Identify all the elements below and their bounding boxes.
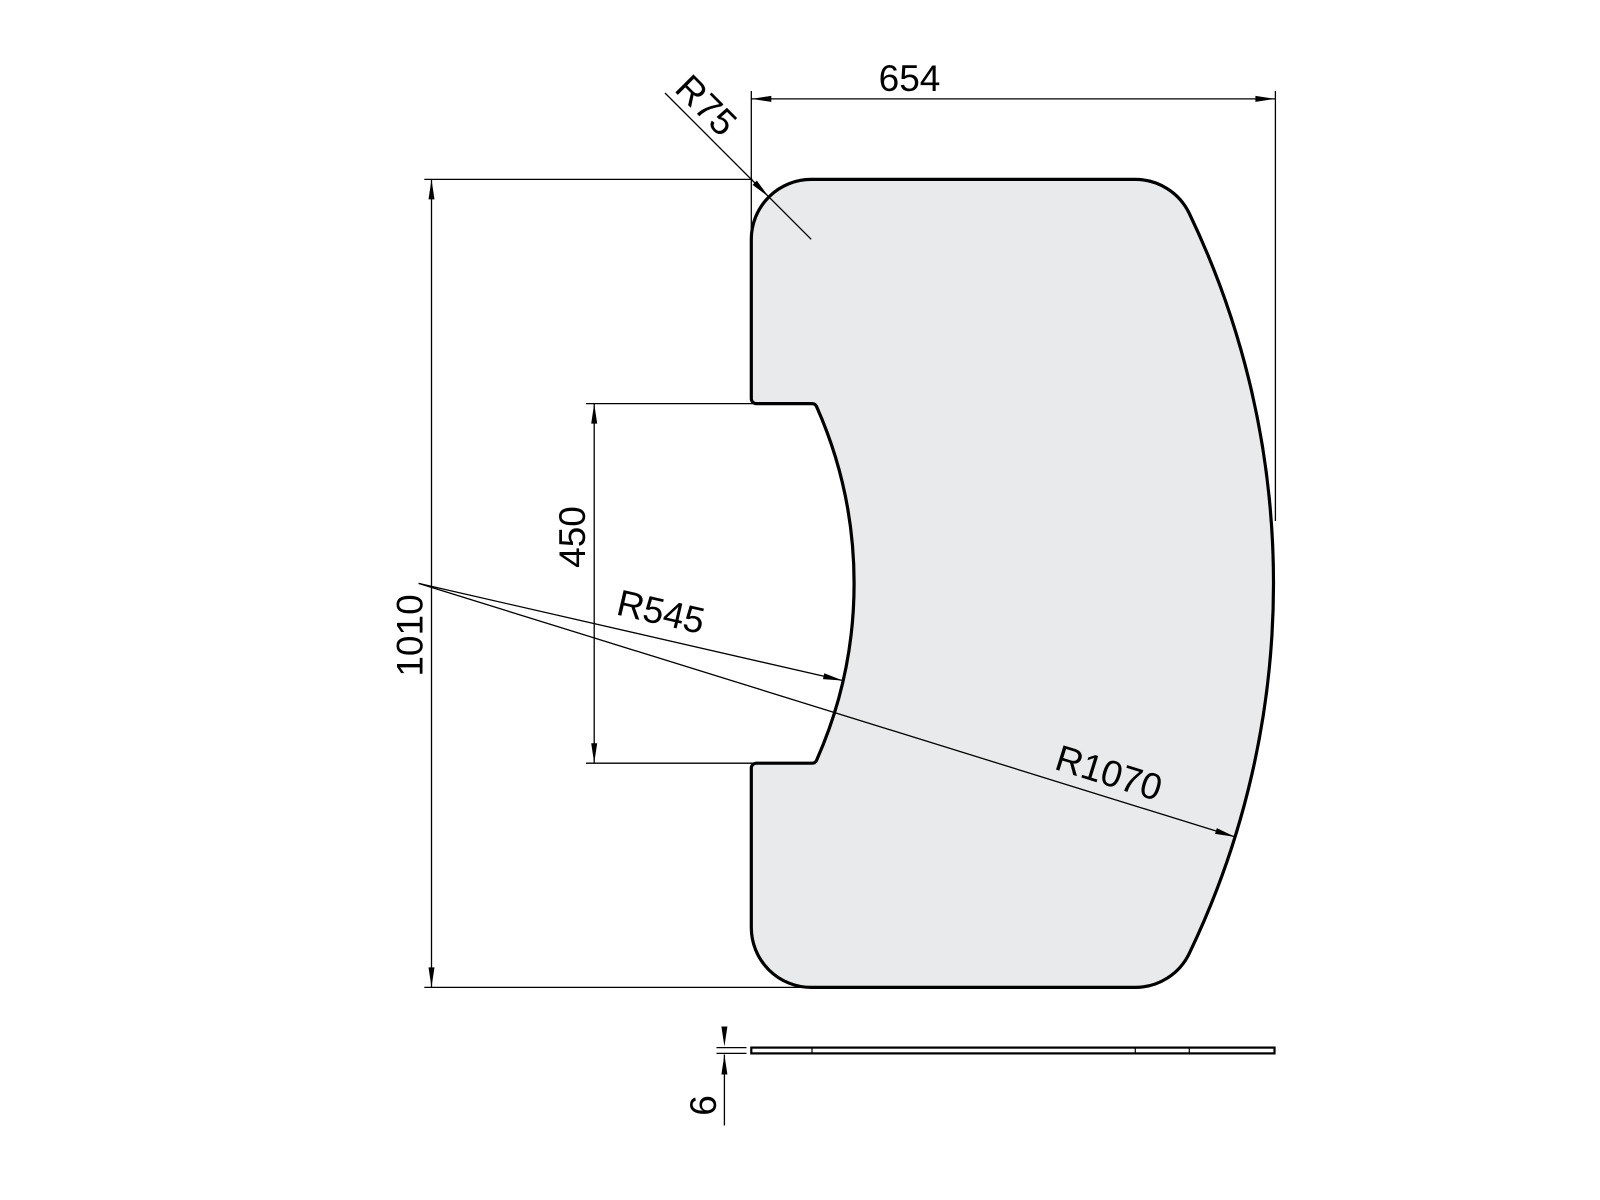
svg-text:450: 450 <box>552 506 593 568</box>
svg-text:6: 6 <box>683 1095 724 1116</box>
svg-text:1010: 1010 <box>390 594 431 676</box>
svg-text:654: 654 <box>879 58 941 99</box>
